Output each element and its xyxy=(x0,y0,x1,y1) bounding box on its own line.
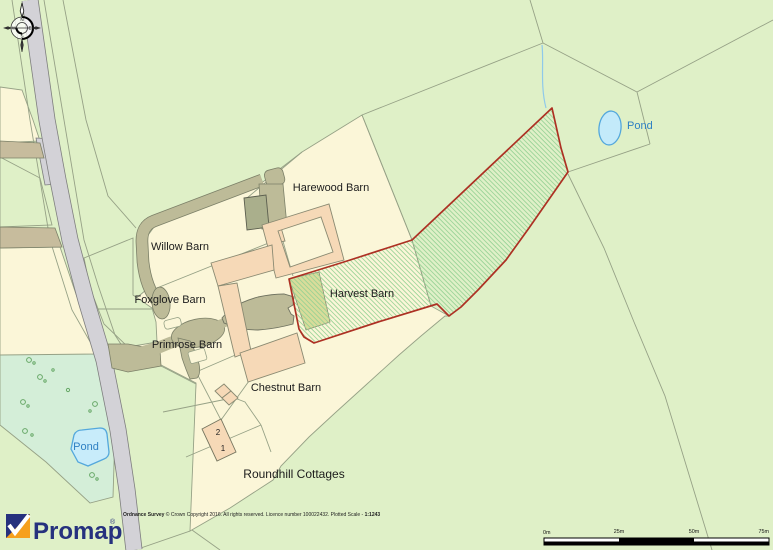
svg-text:Harvest Barn: Harvest Barn xyxy=(330,288,394,300)
svg-text:Ordnance Survey © Crown Copyri: Ordnance Survey © Crown Copyright 2016. … xyxy=(123,511,380,518)
svg-text:E: E xyxy=(28,26,31,31)
svg-text:25m: 25m xyxy=(614,529,625,535)
svg-text:N: N xyxy=(20,17,23,22)
svg-text:Primrose Barn: Primrose Barn xyxy=(152,339,222,351)
svg-text:®: ® xyxy=(110,518,116,526)
svg-text:W: W xyxy=(12,26,17,31)
svg-text:Promap: Promap xyxy=(33,518,122,545)
svg-text:0m: 0m xyxy=(543,530,551,536)
svg-text:75m: 75m xyxy=(759,529,770,535)
svg-text:Chestnut Barn: Chestnut Barn xyxy=(251,382,321,394)
svg-text:Roundhill Cottages: Roundhill Cottages xyxy=(243,467,344,481)
svg-text:S: S xyxy=(20,34,23,39)
svg-text:1: 1 xyxy=(221,444,226,453)
svg-text:2: 2 xyxy=(216,428,221,437)
svg-text:Willow Barn: Willow Barn xyxy=(151,241,209,253)
svg-text:Pond: Pond xyxy=(73,441,99,453)
svg-text:Foxglove Barn: Foxglove Barn xyxy=(135,294,206,306)
svg-text:Harewood Barn: Harewood Barn xyxy=(293,182,369,194)
svg-text:Pond: Pond xyxy=(627,120,653,132)
svg-text:50m: 50m xyxy=(689,529,700,535)
